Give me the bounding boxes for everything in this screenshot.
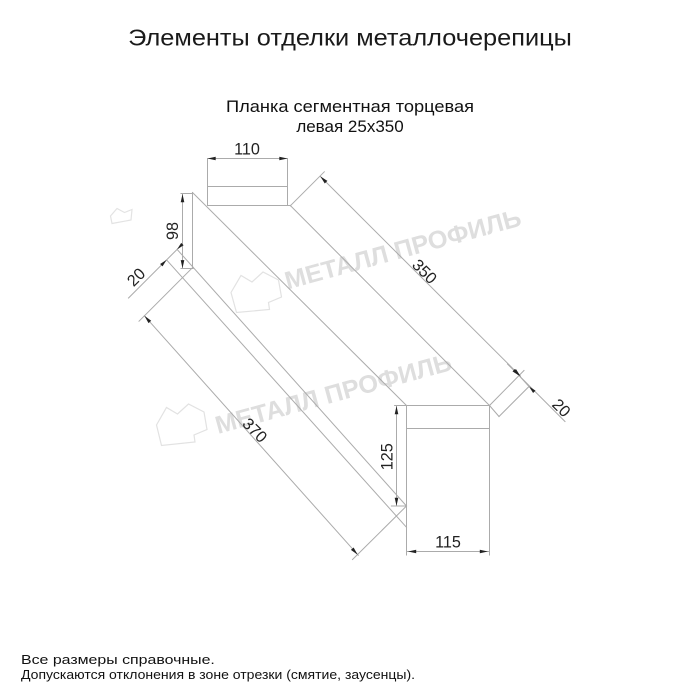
svg-text:115: 115 [435,534,461,552]
svg-text:110: 110 [234,140,260,158]
svg-text:Допускаются отклонения в зоне: Допускаются отклонения в зоне отрезки (с… [21,667,415,682]
svg-text:Элементы отделки металлочерепи: Элементы отделки металлочерепицы [128,25,572,51]
svg-text:Планка сегментная торцевая: Планка сегментная торцевая [226,97,474,116]
svg-text:98: 98 [164,222,182,240]
svg-text:125: 125 [378,443,396,470]
svg-text:левая 25x350: левая 25x350 [296,117,403,136]
svg-text:Все размеры справочные.: Все размеры справочные. [21,653,215,667]
